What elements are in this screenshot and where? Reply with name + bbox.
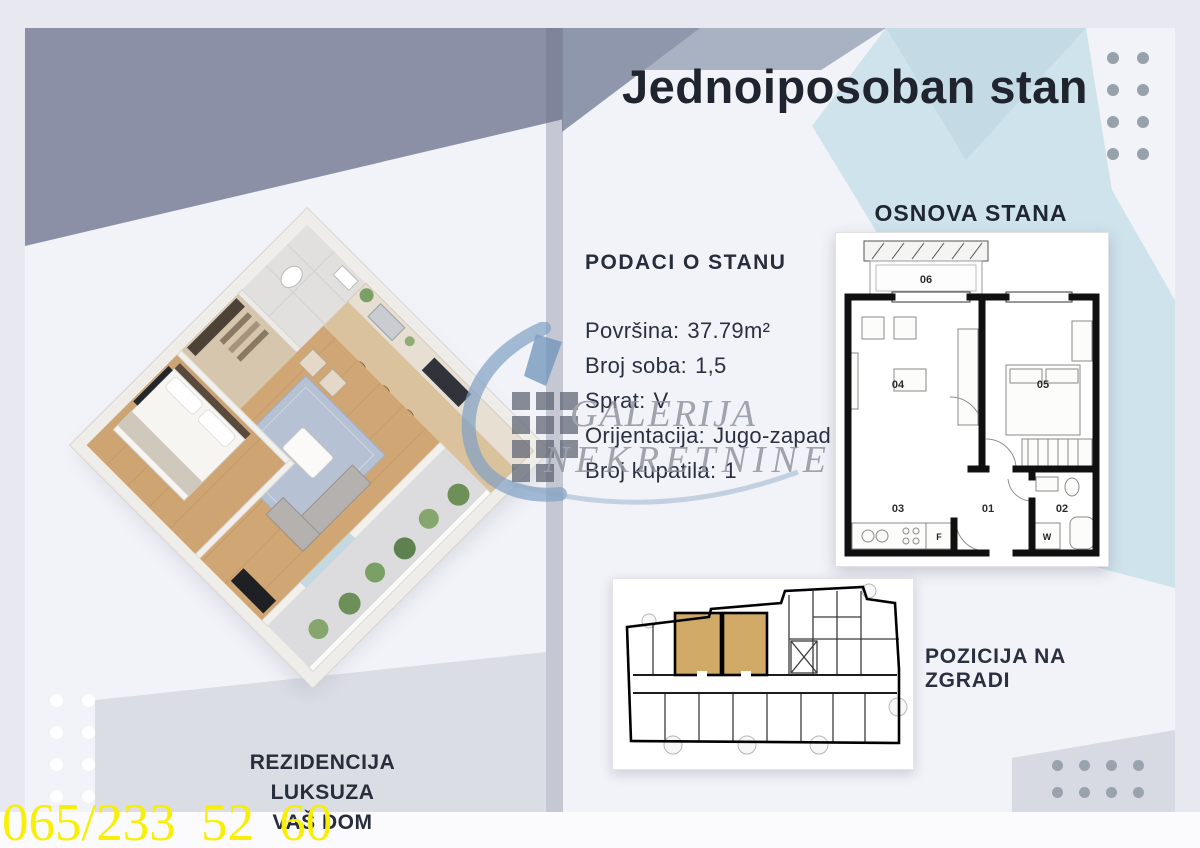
svg-text:01: 01 — [982, 503, 994, 515]
svg-text:06: 06 — [920, 274, 932, 286]
dot — [82, 758, 95, 771]
dot — [1107, 84, 1119, 96]
phone-number: 065/233 52 60 — [2, 795, 332, 848]
building-plan-card — [612, 578, 914, 770]
dot — [1133, 760, 1144, 771]
dot — [1137, 116, 1149, 128]
dot — [1137, 148, 1149, 160]
svg-text:W: W — [1043, 532, 1052, 542]
dot — [1106, 760, 1117, 771]
info-row-floor: Sprat:V — [585, 383, 831, 418]
svg-text:03: 03 — [892, 503, 904, 515]
apartment-3d-render — [52, 198, 567, 703]
info-heading: PODACI O STANU — [585, 251, 831, 275]
svg-text:05: 05 — [1037, 379, 1049, 391]
dot — [1133, 787, 1144, 798]
vertical-divider — [546, 28, 563, 812]
dot — [1137, 52, 1149, 64]
floor-plan-drawing: 06 — [836, 233, 1108, 566]
dot — [50, 758, 63, 771]
dot — [82, 694, 95, 707]
floor-plan-card: 06 — [835, 232, 1109, 567]
building-plan-heading: POZICIJA NA ZGRADI — [925, 645, 1155, 693]
info-row-bathrooms: Broj kupatila:1 — [585, 453, 831, 488]
info-rows: Površina:37.79m² Broj soba:1,5 Sprat:V O… — [585, 313, 831, 488]
dot — [1052, 760, 1063, 771]
info-row-area: Površina:37.79m² — [585, 313, 831, 348]
building-plan-drawing — [613, 579, 913, 769]
dot — [1107, 148, 1119, 160]
svg-text:F: F — [936, 532, 942, 542]
dot — [1106, 787, 1117, 798]
apartment-info: PODACI O STANU Površina:37.79m² Broj sob… — [585, 251, 831, 488]
building-highlight-units — [675, 613, 767, 677]
dot-grid-top-right — [1107, 52, 1149, 160]
dot — [82, 726, 95, 739]
svg-text:04: 04 — [892, 379, 905, 391]
dot — [1052, 787, 1063, 798]
flyer-canvas: Jednoiposoban stan — [0, 0, 1200, 848]
dot — [1137, 84, 1149, 96]
dot-grid-bottom-left — [50, 694, 95, 803]
dot — [1079, 760, 1090, 771]
dot-grid-bottom-right — [1052, 760, 1144, 798]
info-row-rooms: Broj soba:1,5 — [585, 348, 831, 383]
apartment-3d-group — [70, 208, 551, 689]
dot — [50, 726, 63, 739]
page-title: Jednoiposoban stan — [575, 52, 1135, 122]
floor-plan-heading: OSNOVA STANA — [835, 200, 1107, 227]
dot — [1107, 116, 1119, 128]
svg-text:02: 02 — [1056, 503, 1068, 515]
dot — [1079, 787, 1090, 798]
info-row-orientation: Orijentacija:Jugo-zapad — [585, 418, 831, 453]
dot — [50, 694, 63, 707]
dot — [1107, 52, 1119, 64]
plan-balcony-06 — [864, 241, 988, 295]
